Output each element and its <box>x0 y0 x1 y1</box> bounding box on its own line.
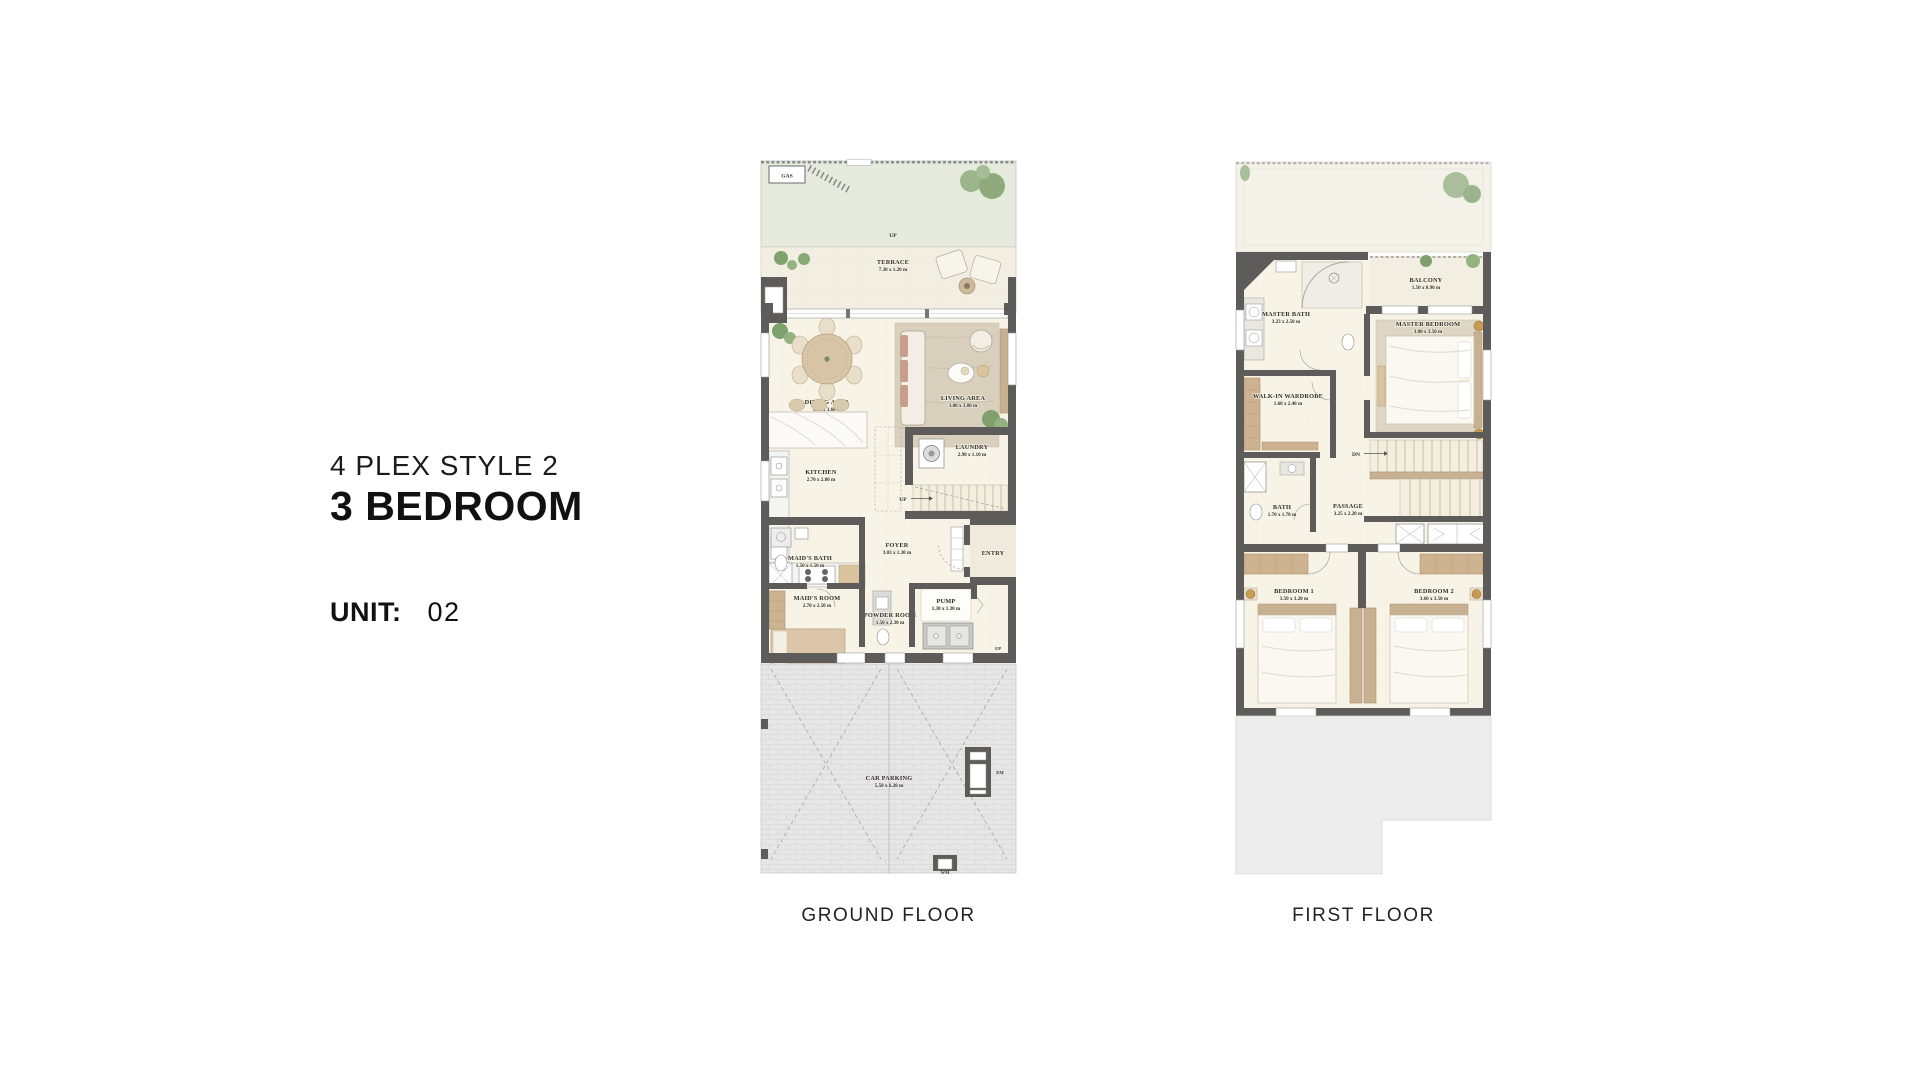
ground-floor-plan: GAS UP TERRACE 7.30 x 1.20 m <box>755 159 1022 875</box>
maids-bath-label: MAID'S BATH <box>788 555 832 562</box>
bath-dims: 1.70 x 1.70 m <box>1268 512 1297 518</box>
wm-label: WM <box>941 870 951 875</box>
stool-icon <box>789 399 805 411</box>
living-dims: 3.80 x 3.80 m <box>949 403 978 409</box>
bedroom2-dims: 3.60 x 3.50 m <box>1420 596 1449 602</box>
sliding-doors <box>769 309 1008 318</box>
bedroom2-label: BEDROOM 2 <box>1414 588 1454 595</box>
passage-label: PASSAGE <box>1333 503 1363 510</box>
shelving-icon <box>1262 442 1318 450</box>
bedroom1-label: BEDROOM 1 <box>1274 588 1314 595</box>
bed-icon <box>1386 332 1482 428</box>
laundry-label: LAUNDRY <box>956 444 989 451</box>
sink-icon <box>795 528 808 539</box>
sofa-icon <box>900 331 925 425</box>
garden-area: GAS UP <box>761 160 1016 248</box>
master-bath-dims: 3.23 x 2.50 m <box>1272 319 1301 325</box>
plant-icon <box>1240 165 1250 181</box>
toilet-icon <box>1342 334 1354 350</box>
foyer-label: FOYER <box>885 542 908 549</box>
pump-label: PUMP <box>937 598 956 605</box>
master-bedroom-label: MASTER BEDROOM <box>1396 321 1461 328</box>
kitchen-label: KITCHEN <box>805 469 836 476</box>
shower-icon <box>771 528 791 547</box>
vent-icon <box>1276 261 1296 272</box>
terrace-label: TERRACE <box>877 259 909 266</box>
pump-dims: 1.30 x 1.30 m <box>932 606 961 612</box>
unit-label: UNIT: <box>330 597 402 628</box>
unit-number: 02 <box>428 597 461 628</box>
garden-up-label: UP <box>889 233 897 239</box>
master-bath-label: MASTER BATH <box>1262 311 1310 318</box>
bed-icon <box>1258 604 1336 703</box>
entry-label: ENTRY <box>982 550 1005 557</box>
linen-closets <box>1396 524 1486 544</box>
bed-icon <box>1390 604 1468 703</box>
fence-gate <box>847 160 871 166</box>
toilet-icon <box>877 629 889 645</box>
bath-label: BATH <box>1273 504 1291 511</box>
armchair-icon <box>970 330 992 352</box>
wardrobe-label: WALK-IN WARDROBE <box>1253 393 1323 400</box>
roof-terrace <box>1236 162 1491 252</box>
bedroom1-dims: 3.50 x 3.20 m <box>1280 596 1309 602</box>
terrace-dims: 7.30 x 1.20 m <box>879 267 908 273</box>
first-floor-svg: BALCONY 1.50 x 0.90 m MASTER BATH 3. <box>1230 160 1497 876</box>
first-floor-caption: FIRST FLOOR <box>1230 905 1497 927</box>
car-parking-area: CAR PARKING 5.50 x 6.20 m EM WM <box>761 664 1016 875</box>
electric-meter-icon <box>965 747 991 797</box>
wardrobe-dims: 1.60 x 2.40 m <box>1274 401 1303 407</box>
em-label: EM <box>996 770 1004 775</box>
lower-roof-area <box>1236 716 1491 874</box>
master-bedroom: MASTER BEDROOM 3.80 x 3.50 m <box>1376 320 1484 439</box>
stool-icon <box>811 399 827 411</box>
balcony-dims: 1.50 x 0.90 m <box>1412 285 1441 291</box>
passage-dims: 3.25 x 2.20 m <box>1334 511 1363 517</box>
entry-porch: ENTRY <box>982 550 1005 557</box>
stairs-up-label: UP <box>899 497 907 503</box>
lamp-icon <box>1472 590 1481 599</box>
kitchen-island-icon <box>767 412 867 448</box>
foyer-dims: 3.03 x 1.30 m <box>883 550 912 556</box>
balcony-label: BALCONY <box>1410 277 1443 284</box>
lamp-icon <box>1474 321 1484 331</box>
double-sink-icon <box>923 623 973 649</box>
master-bedroom-dims: 3.80 x 3.50 m <box>1414 329 1443 335</box>
ground-floor-caption: GROUND FLOOR <box>755 905 1022 927</box>
washer-icon <box>919 439 944 468</box>
gas-label: GAS <box>781 174 793 180</box>
maids-bath-dims: 1.50 x 1.50 m <box>796 563 825 569</box>
toilet-icon <box>775 555 787 571</box>
kitchen-dims: 2.70 x 2.80 m <box>807 477 836 483</box>
stair-landing-cap <box>1370 472 1483 479</box>
parking-label: CAR PARKING <box>866 775 913 782</box>
toilet-icon <box>1250 504 1262 520</box>
bedroom-count-title: 3 BEDROOM <box>330 483 583 530</box>
vanity-icon <box>1244 298 1264 360</box>
shower-icon <box>1244 462 1266 492</box>
first-floor-plan: BALCONY 1.50 x 0.90 m MASTER BATH 3. <box>1230 160 1497 876</box>
wardrobe-icon <box>769 591 785 629</box>
living-label: LIVING AREA <box>941 395 986 402</box>
maids-room-label: MAID'S ROOM <box>794 595 841 602</box>
powder-label: POWDER ROOM <box>864 612 916 619</box>
lamp-icon <box>1246 590 1255 599</box>
unit-row: UNIT: 02 <box>330 597 461 628</box>
stairs-dn-label: DN <box>1352 452 1360 458</box>
stool-icon <box>833 399 849 411</box>
powder-dims: 1.50 x 2.30 m <box>876 620 905 626</box>
laundry-dims: 2.90 x 1.10 m <box>958 452 987 458</box>
shower-icon <box>1302 262 1362 308</box>
maids-room-dims: 2.70 x 2.50 m <box>803 603 832 609</box>
ground-floor-svg: GAS UP TERRACE 7.30 x 1.20 m <box>755 159 1022 875</box>
closet-icon <box>1420 554 1483 574</box>
water-meter-icon <box>933 855 957 871</box>
parking-dims: 5.50 x 6.20 m <box>875 783 904 789</box>
floorplan-page: 4 PLEX STYLE 2 3 BEDROOM UNIT: 02 GAS <box>0 0 1920 1080</box>
ground-stairs: UP <box>899 485 1008 511</box>
terrace-area: TERRACE 7.30 x 1.20 m <box>761 247 1016 313</box>
plex-style-title: 4 PLEX STYLE 2 <box>330 450 583 482</box>
bench-icon <box>1378 366 1385 406</box>
title-block: 4 PLEX STYLE 2 3 BEDROOM <box>330 450 583 530</box>
entry-up-label: UP <box>995 646 1001 651</box>
console-icon <box>1000 329 1009 413</box>
